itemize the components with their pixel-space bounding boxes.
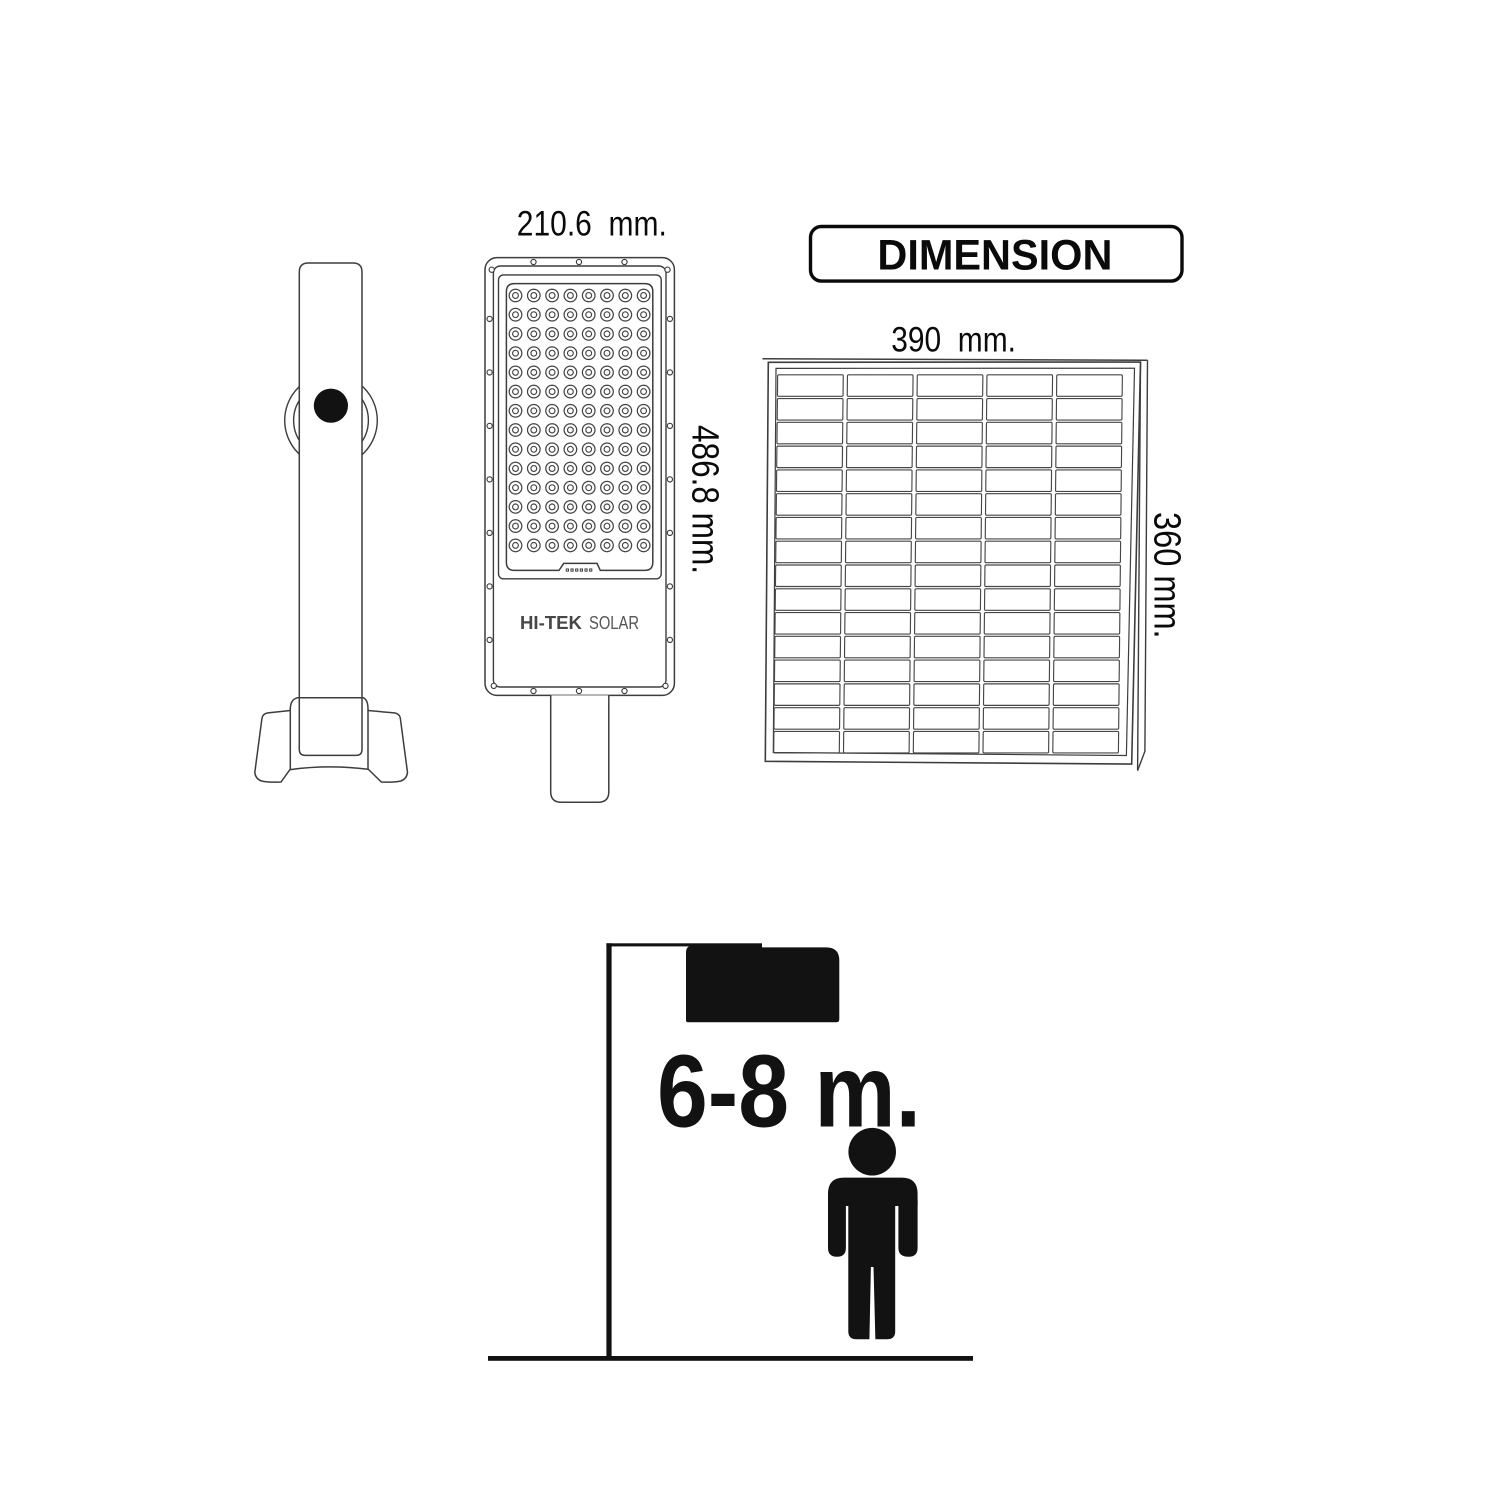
svg-text:210.6 mm.: 210.6 mm.	[517, 205, 667, 244]
svg-text:360 mm.: 360 mm.	[1145, 512, 1187, 639]
svg-text:SOLAR: SOLAR	[589, 612, 639, 633]
svg-text:DIMENSION: DIMENSION	[877, 232, 1112, 280]
svg-text:HI-TEK: HI-TEK	[520, 612, 583, 633]
svg-text:486.8 mm.: 486.8 mm.	[683, 425, 725, 574]
svg-text:390 mm.: 390 mm.	[891, 320, 1016, 359]
